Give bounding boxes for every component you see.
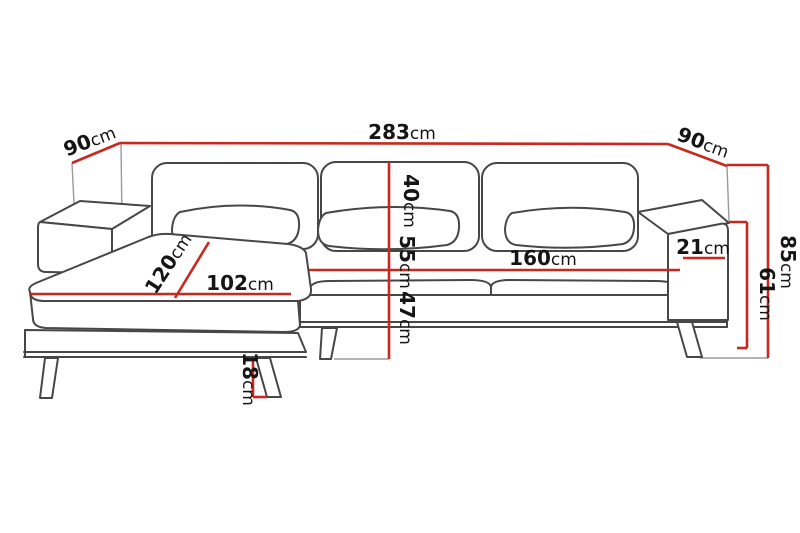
dim-width-total-label: 283cm: [368, 120, 436, 144]
chaise-leg-left: [40, 358, 58, 398]
dim-frame-height-label: 47cm: [395, 291, 419, 345]
lumbar-pillow-right: [505, 208, 634, 248]
sofa-outline: [24, 162, 729, 398]
dim-seat-height-label: 55cm: [395, 235, 419, 289]
dim-arm-width-label: 21cm: [676, 235, 730, 259]
sofa-dimension-diagram: 283cm 90cm 90cm 85cm 61cm 21cm 160cm 102…: [0, 0, 800, 533]
seat-cushion-right: [491, 280, 678, 295]
dim-chaise-width-label: 102cm: [206, 271, 274, 295]
dim-back-height-label: 40cm: [399, 174, 423, 228]
dim-seat-width-label: 160cm: [509, 246, 577, 270]
dim-height-arm-label: 61cm: [755, 267, 779, 321]
sofa-leg-front-left: [320, 328, 337, 359]
diagram-canvas: 283cm 90cm 90cm 85cm 61cm 21cm 160cm 102…: [0, 0, 800, 533]
chaise-base: [25, 330, 306, 352]
construct-right-box-vertical: [727, 166, 729, 221]
dim-leg-height-label: 18cm: [238, 352, 262, 406]
